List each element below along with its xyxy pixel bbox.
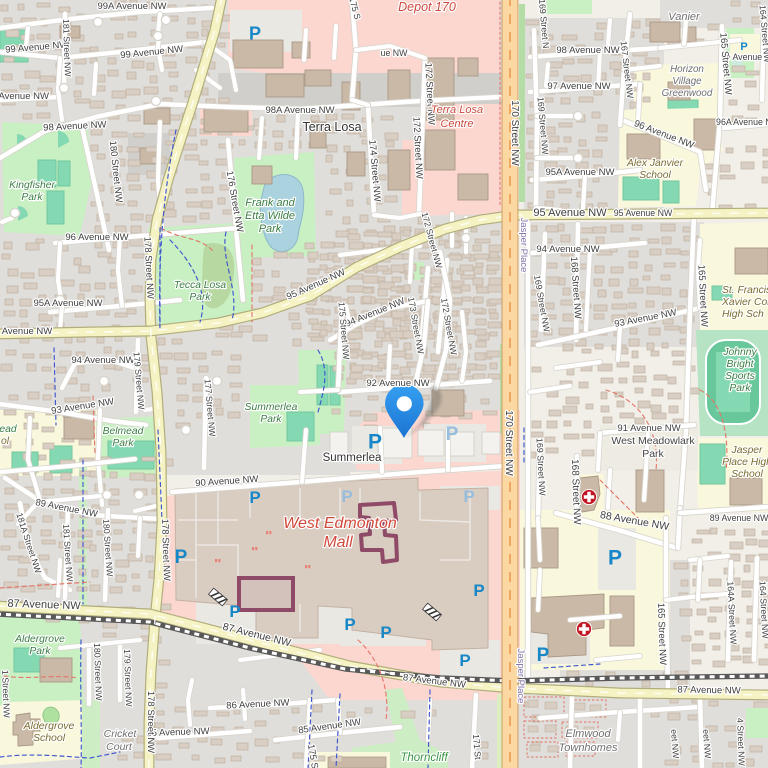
svg-text:95A Avenue NW: 95A Avenue NW: [545, 167, 614, 178]
svg-text:Park: Park: [642, 448, 664, 460]
svg-text:96A Avenue NW: 96A Avenue NW: [716, 117, 768, 127]
svg-text:179 Street NW: 179 Street NW: [122, 649, 134, 708]
svg-text:Thorncliff: Thorncliff: [400, 752, 449, 764]
svg-text:Park: Park: [259, 223, 282, 235]
svg-text:P: P: [463, 487, 474, 506]
svg-text:P: P: [446, 424, 459, 445]
svg-text:Elmwood: Elmwood: [565, 728, 611, 740]
svg-text:Village: Village: [672, 76, 702, 87]
svg-text:Place High: Place High: [722, 457, 768, 468]
svg-text:94 Avenue NW: 94 Avenue NW: [71, 355, 134, 366]
svg-text:178 Street NW: 178 Street NW: [145, 691, 156, 753]
svg-text:181 Street NW: 181 Street NW: [61, 19, 73, 78]
svg-text:170 Street NW: 170 Street NW: [509, 100, 520, 166]
svg-text:Avenue NW: Avenue NW: [2, 326, 53, 337]
svg-text:eet NW: eet NW: [669, 729, 681, 760]
svg-text:Johnny: Johnny: [722, 347, 757, 358]
svg-text:Tecca Losa: Tecca Losa: [174, 280, 227, 291]
svg-text:Jasper Place: Jasper Place: [518, 218, 529, 273]
svg-text:Court: Court: [106, 741, 133, 753]
svg-text:ol: ol: [1, 436, 10, 447]
svg-text:School: School: [639, 170, 671, 181]
svg-text:P: P: [608, 547, 622, 570]
svg-text:Vanier: Vanier: [668, 11, 701, 23]
svg-text:P: P: [175, 547, 188, 568]
svg-text:Aldergrove: Aldergrove: [23, 720, 75, 732]
svg-text:94 Avenue NW: 94 Avenue NW: [536, 244, 599, 255]
svg-text:P: P: [380, 623, 391, 642]
svg-text:Belmead: Belmead: [103, 426, 144, 437]
svg-text:P: P: [459, 651, 470, 670]
svg-text:ead: ead: [0, 424, 17, 435]
svg-text:Park: Park: [729, 383, 751, 394]
svg-text:West Edmonton: West Edmonton: [283, 515, 397, 532]
svg-text:High Sch: High Sch: [722, 309, 764, 320]
svg-text:1 Street NW: 1 Street NW: [0, 670, 12, 719]
svg-text:Etta Wilde: Etta Wilde: [245, 210, 295, 222]
svg-text:Jasper Place: Jasper Place: [515, 649, 526, 704]
svg-text:89 Avenue NW: 89 Avenue NW: [710, 513, 768, 523]
svg-text:P: P: [368, 431, 382, 454]
svg-text:Park: Park: [29, 646, 51, 657]
svg-text:P: P: [249, 23, 261, 43]
svg-text:4 Street NW: 4 Street NW: [735, 718, 747, 767]
svg-text:9 Avenue NW: 9 Avenue NW: [0, 91, 49, 102]
svg-text:Aldergrove: Aldergrove: [14, 634, 65, 645]
svg-text:P: P: [229, 602, 240, 621]
svg-text:165 Street NW: 165 Street NW: [655, 603, 668, 666]
svg-text:Alex Janvier: Alex Janvier: [626, 158, 684, 169]
svg-text:Townhomes: Townhomes: [559, 742, 618, 754]
svg-text:eet NW: eet NW: [701, 729, 713, 760]
svg-text:96 Avenue NW: 96 Avenue NW: [65, 232, 128, 243]
svg-text:Frank and: Frank and: [245, 197, 295, 209]
svg-text:Centre: Centre: [440, 118, 473, 130]
svg-text:Horizon: Horizon: [670, 64, 704, 75]
svg-text:Sports: Sports: [725, 371, 755, 382]
svg-text:West Meadowlark: West Meadowlark: [611, 435, 695, 447]
svg-text:St. Francis: St. Francis: [722, 285, 768, 296]
svg-text:87 Avenue NW: 87 Avenue NW: [677, 684, 740, 696]
svg-text:Greenwood: Greenwood: [662, 88, 713, 99]
svg-text:Summerlea: Summerlea: [245, 402, 298, 413]
svg-text:98A Avenue NW: 98A Avenue NW: [265, 105, 334, 116]
svg-text:Bright: Bright: [727, 359, 755, 370]
svg-text:97 Avenue NW: 97 Avenue NW: [547, 81, 610, 92]
svg-text:Park: Park: [189, 292, 211, 303]
svg-text:P: P: [344, 615, 355, 634]
svg-text:91 Avenue NW: 91 Avenue NW: [617, 423, 680, 434]
svg-text:180 Street NW: 180 Street NW: [92, 643, 104, 702]
svg-text:School: School: [731, 469, 763, 480]
svg-text:Summerlea: Summerlea: [323, 452, 382, 464]
svg-text:98 Avenue NW: 98 Avenue NW: [556, 45, 619, 56]
svg-text:Park: Park: [260, 414, 282, 425]
svg-text:P: P: [473, 581, 484, 600]
svg-text:95A Avenue NW: 95A Avenue NW: [33, 298, 102, 309]
svg-text:Cricket: Cricket: [104, 728, 138, 740]
svg-text:Terra Losa: Terra Losa: [302, 120, 361, 134]
svg-text:P: P: [249, 488, 260, 507]
svg-text:95 Avenue NW: 95 Avenue NW: [614, 208, 673, 218]
svg-text:Park: Park: [112, 438, 134, 449]
svg-text:Depot 170: Depot 170: [398, 0, 456, 14]
svg-text:99A Avenue NW: 99A Avenue NW: [97, 1, 166, 12]
svg-text:178 Street NW: 178 Street NW: [159, 519, 172, 582]
svg-text:Xavier Coll: Xavier Coll: [721, 297, 768, 308]
svg-text:170 Street NW: 170 Street NW: [503, 410, 514, 476]
svg-text:Park: Park: [21, 192, 43, 203]
svg-text:Kingfisher: Kingfisher: [9, 180, 55, 191]
svg-text:168 Street NW: 168 Street NW: [569, 459, 582, 525]
svg-text:School: School: [33, 732, 66, 744]
svg-text:P: P: [537, 645, 550, 666]
svg-text:92 Avenue NW: 92 Avenue NW: [366, 378, 429, 389]
svg-text:ue NW: ue NW: [381, 48, 409, 58]
svg-text:Jasper: Jasper: [731, 445, 763, 456]
svg-text:Terra Losa: Terra Losa: [431, 104, 483, 116]
svg-text:P: P: [341, 487, 352, 506]
svg-text:95 Avenue NW: 95 Avenue NW: [533, 207, 607, 219]
svg-text:Mall: Mall: [323, 534, 353, 551]
